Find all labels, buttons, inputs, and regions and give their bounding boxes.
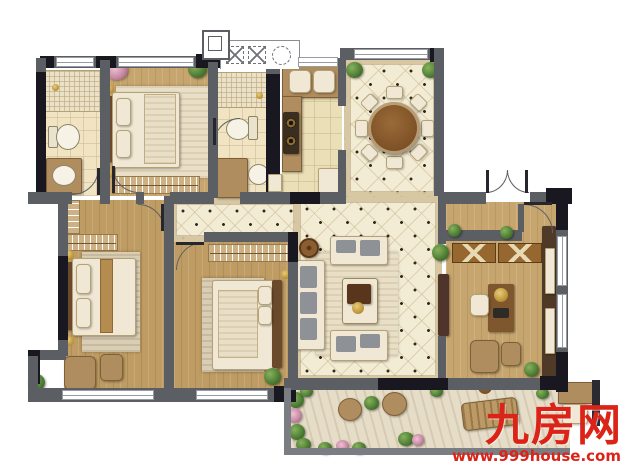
wall	[338, 58, 346, 106]
sofa-cushion	[336, 336, 356, 352]
dining-chair	[386, 86, 403, 99]
toilet-icon	[56, 124, 80, 150]
bed-pillow	[76, 298, 91, 328]
bed-runner	[100, 259, 113, 333]
round-dining-table	[368, 102, 420, 154]
window	[118, 57, 194, 67]
wall-dark	[288, 232, 298, 262]
x-front-console	[452, 243, 496, 263]
window	[557, 294, 567, 348]
desk-clock-icon	[494, 288, 508, 302]
wall-dark	[36, 72, 46, 192]
wall	[136, 192, 144, 204]
bed-blanket	[218, 290, 258, 358]
plant-icon	[264, 368, 281, 385]
sofa-cushion	[360, 240, 380, 256]
wall-dark	[540, 376, 568, 390]
shower-head-icon	[256, 92, 263, 99]
wall	[164, 196, 174, 390]
window	[56, 57, 94, 67]
desk-laptop-icon	[493, 308, 509, 318]
entry-door-arc	[486, 170, 508, 193]
bathroom-2-shower-area	[216, 72, 270, 108]
round-side-table	[299, 238, 319, 258]
plant-icon	[524, 362, 539, 377]
ottoman	[100, 354, 123, 381]
flue-shaft-inner	[208, 36, 222, 51]
tv-cabinet	[438, 274, 449, 336]
door-leaf	[486, 170, 489, 193]
round-chair	[338, 398, 362, 421]
door-leaf	[97, 168, 100, 195]
bathroom-1-shower-area	[44, 70, 102, 112]
window	[557, 236, 567, 286]
window	[354, 49, 428, 59]
ac-unit-icon	[248, 46, 266, 64]
door-leaf	[112, 166, 115, 193]
window	[298, 57, 338, 67]
window	[196, 390, 268, 400]
plant-icon	[346, 62, 363, 78]
wall	[100, 192, 110, 204]
bookshelf-panel	[545, 248, 555, 294]
bed-pillow	[258, 306, 272, 325]
kitchen-sink	[289, 70, 311, 93]
bed-pillow	[116, 130, 131, 158]
watermark-url: www.999house.com	[371, 448, 621, 464]
x-front-console	[498, 243, 542, 263]
kitchen-sink	[313, 70, 335, 93]
dining-chair	[355, 120, 368, 137]
master-wardrobe	[66, 234, 118, 251]
terrace-rail	[284, 388, 291, 454]
door-leaf	[161, 204, 164, 231]
plant-icon	[500, 226, 513, 239]
bed-blanket	[144, 94, 176, 164]
ottoman	[501, 342, 521, 366]
door-leaf	[524, 202, 552, 205]
plant-icon	[448, 224, 461, 237]
wall	[28, 192, 72, 204]
sofa-cushion	[336, 240, 356, 253]
floor-plan: 九房网 www.999house.com	[0, 0, 625, 464]
wall-dark	[58, 256, 68, 340]
wall	[100, 60, 110, 198]
sofa-cushion	[360, 334, 380, 348]
armchair	[470, 340, 499, 373]
wall	[434, 48, 444, 196]
plant-icon	[432, 244, 449, 261]
wall	[338, 150, 346, 198]
door-leaf	[525, 170, 528, 193]
desk-chair	[470, 294, 489, 316]
bed-pillow	[116, 98, 131, 126]
bed-pillow	[76, 264, 91, 294]
bedroom-3-wardrobe	[208, 244, 292, 262]
toilet-tank	[248, 116, 258, 140]
wall-dark	[290, 192, 320, 204]
armchair	[64, 356, 96, 390]
coffee-table-tray	[347, 284, 371, 304]
sofa-cushion	[300, 292, 317, 314]
window	[62, 390, 154, 400]
dining-chair	[386, 156, 403, 169]
watermark-logo: 九房网	[373, 404, 623, 448]
burner-icon	[286, 118, 296, 128]
bookshelf-panel	[545, 308, 555, 354]
wall	[170, 192, 214, 204]
sofa-cushion	[300, 266, 317, 288]
wall-dark	[556, 204, 568, 232]
fruit-bowl-icon	[352, 302, 364, 314]
wall	[438, 196, 446, 244]
sofa-cushion	[300, 318, 317, 340]
bed-headboard	[272, 280, 282, 368]
wall	[204, 232, 296, 242]
closet-shelf	[66, 200, 80, 234]
fan-circle-icon	[272, 46, 291, 65]
bed-pillow	[258, 286, 272, 305]
wall-dark	[266, 74, 280, 166]
wall-dark	[378, 378, 448, 390]
shower-head-icon	[52, 84, 59, 91]
water-heater-icon	[268, 174, 282, 192]
door-leaf	[213, 118, 216, 145]
dining-chair	[421, 120, 434, 137]
door-leaf	[176, 242, 204, 245]
burner-icon	[286, 136, 296, 146]
wall	[442, 192, 486, 204]
